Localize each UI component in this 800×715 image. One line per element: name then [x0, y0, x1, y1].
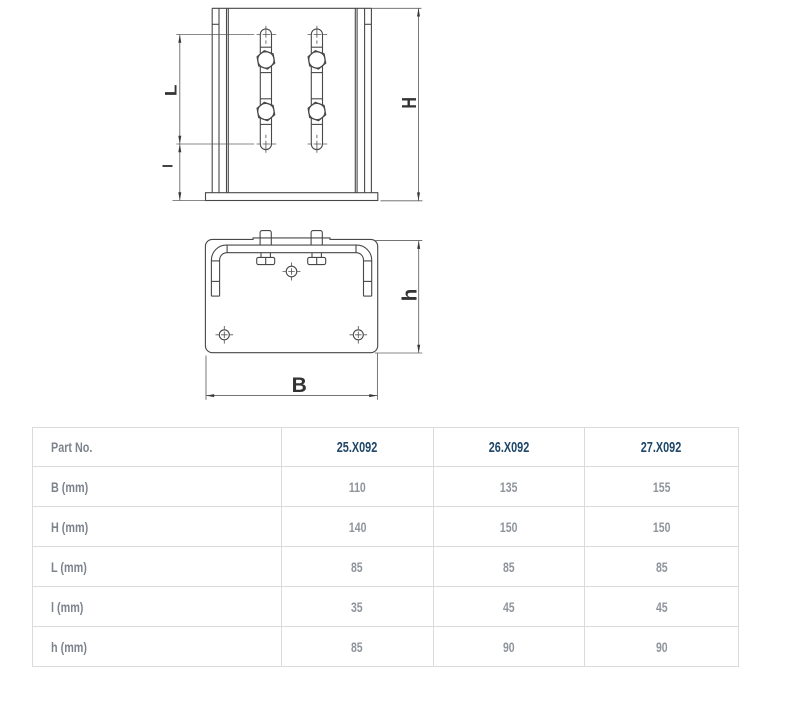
svg-text:L: L — [161, 84, 180, 96]
svg-text:H: H — [397, 97, 420, 109]
svg-text:l: l — [160, 164, 175, 168]
svg-text:h: h — [399, 289, 422, 302]
svg-text:B: B — [292, 374, 307, 397]
